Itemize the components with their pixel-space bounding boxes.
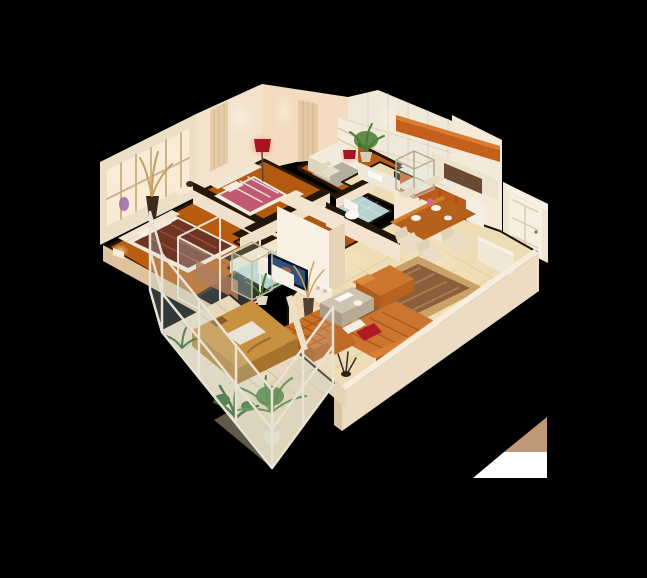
toilet-bowl <box>345 211 359 220</box>
wall-spotlight-a <box>226 98 254 138</box>
ledge-decor-1 <box>186 181 194 187</box>
study-plant-blob <box>354 131 378 149</box>
purple-flowers <box>119 197 129 211</box>
decor-twigs-vase <box>341 371 351 377</box>
study-plant-pot <box>360 152 372 162</box>
floor-lamp-shade <box>254 139 271 152</box>
dining-plate-1 <box>411 215 421 221</box>
tv-speaker-1 <box>316 286 320 290</box>
tv-wall-side <box>329 223 345 292</box>
entrance-door-knob <box>534 230 537 233</box>
coffee-table-bowl <box>354 300 363 306</box>
dining-plate-3 <box>444 216 452 221</box>
floor-lamp-pole <box>262 152 263 181</box>
apartment-3d-floorplan-image <box>0 0 647 578</box>
dining-flowers <box>427 198 433 206</box>
dining-plate-2 <box>431 205 441 211</box>
tv-speaker-2 <box>323 289 327 293</box>
floorplan-render-stage <box>0 0 647 578</box>
wall-spotlight-b <box>272 94 296 130</box>
study-lamp-shade <box>343 150 356 159</box>
